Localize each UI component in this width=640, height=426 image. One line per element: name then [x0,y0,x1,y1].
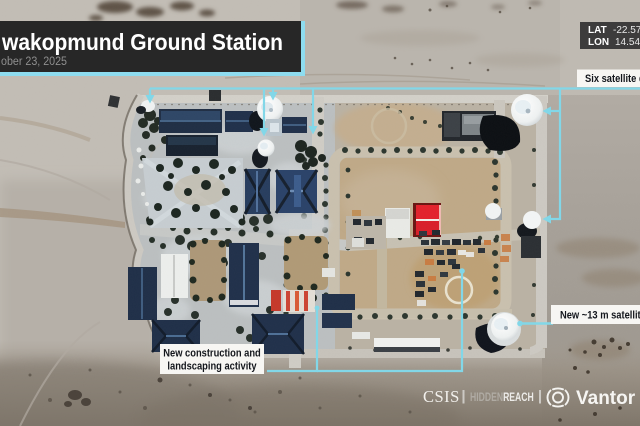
svg-text:Six satellite dishes: Six satellite dishes [585,73,640,85]
svg-text:14.545: 14.545 [615,37,640,48]
svg-text:Vantor: Vantor [576,388,636,409]
svg-text:ober 23, 2025: ober 23, 2025 [1,56,67,68]
svg-text:LAT: LAT [588,25,607,36]
svg-text:-22.576: -22.576 [613,25,640,36]
svg-text:wakopmund Ground Station: wakopmund Ground Station [1,29,283,55]
svg-text:LON: LON [588,37,609,48]
svg-text:New ~13 m satellite dish: New ~13 m satellite dish [560,310,640,322]
svg-text:HIDDENREACH: HIDDENREACH [470,392,534,405]
svg-text:New construction and: New construction and [163,348,260,360]
svg-text:landscaping activity: landscaping activity [167,361,256,373]
svg-text:CSIS: CSIS [423,387,460,406]
